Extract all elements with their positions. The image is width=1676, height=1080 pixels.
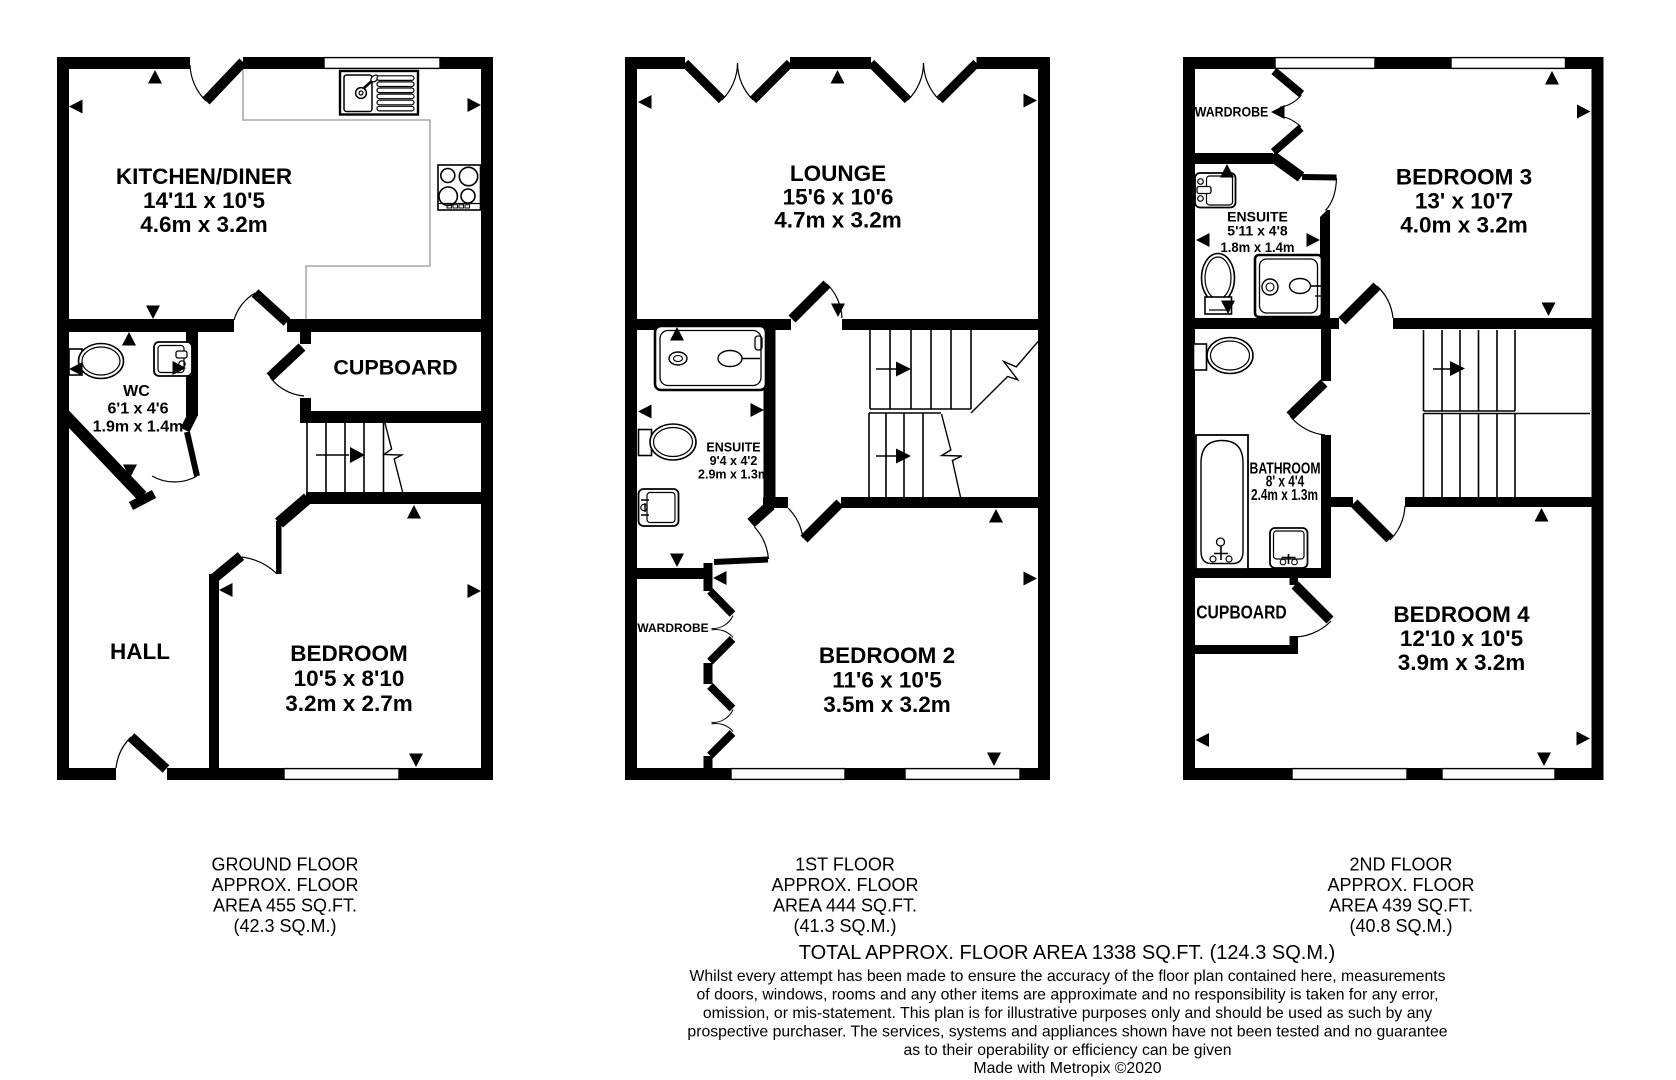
svg-text:AREA 455 SQ.FT.: AREA 455 SQ.FT. (213, 896, 357, 916)
svg-text:(41.3 SQ.M.): (41.3 SQ.M.) (793, 916, 896, 936)
svg-text:2.9m x 1.3m: 2.9m x 1.3m (698, 468, 769, 482)
svg-text:ENSUITE: ENSUITE (706, 441, 760, 455)
svg-text:(40.8 SQ.M.): (40.8 SQ.M.) (1349, 916, 1452, 936)
svg-text:of doors, windows, rooms and a: of doors, windows, rooms and any other i… (697, 987, 1439, 1004)
svg-text:WARDROBE: WARDROBE (637, 621, 708, 635)
svg-text:BEDROOM 4: BEDROOM 4 (1393, 602, 1530, 627)
svg-text:BEDROOM 3: BEDROOM 3 (1396, 165, 1532, 190)
svg-text:CUPBOARD: CUPBOARD (1196, 603, 1287, 623)
svg-text:prospective purchaser. The ser: prospective purchaser. The services, sys… (687, 1024, 1447, 1041)
svg-text:13' x 10'7: 13' x 10'7 (1415, 189, 1513, 214)
svg-text:4.0m x 3.2m: 4.0m x 3.2m (1400, 213, 1528, 238)
svg-text:14'11 x 10'5: 14'11 x 10'5 (143, 188, 265, 213)
svg-text:3.2m x 2.7m: 3.2m x 2.7m (285, 691, 413, 716)
svg-text:HALL: HALL (110, 639, 170, 664)
svg-text:KITCHEN/DINER: KITCHEN/DINER (116, 164, 292, 189)
svg-text:BEDROOM: BEDROOM (290, 641, 408, 666)
svg-text:Whilst every attempt has been: Whilst every attempt has been made to en… (689, 968, 1445, 985)
svg-text:CUPBOARD: CUPBOARD (333, 356, 457, 380)
svg-text:5'11 x 4'8: 5'11 x 4'8 (1227, 223, 1288, 239)
svg-text:2ND FLOOR: 2ND FLOOR (1349, 855, 1452, 875)
svg-text:TOTAL APPROX. FLOOR AREA 1338: TOTAL APPROX. FLOOR AREA 1338 SQ.FT. (12… (799, 942, 1335, 964)
svg-text:10'5 x 8'10: 10'5 x 8'10 (294, 666, 405, 691)
svg-text:omission, or mis-statement. Th: omission, or mis-statement. This plan is… (703, 1005, 1432, 1022)
svg-text:11'6 x 10'5: 11'6 x 10'5 (832, 668, 942, 693)
svg-text:AREA 444 SQ.FT.: AREA 444 SQ.FT. (773, 896, 917, 916)
svg-text:15'6 x 10'6: 15'6 x 10'6 (783, 185, 894, 210)
svg-text:3.5m x 3.2m: 3.5m x 3.2m (823, 692, 951, 717)
svg-text:LOUNGE: LOUNGE (790, 161, 886, 186)
svg-text:APPROX. FLOOR: APPROX. FLOOR (1327, 875, 1474, 895)
svg-text:Made with Metropix ©2020: Made with Metropix ©2020 (973, 1060, 1161, 1077)
svg-text:3.9m x 3.2m: 3.9m x 3.2m (1398, 650, 1526, 675)
svg-text:1ST FLOOR: 1ST FLOOR (795, 855, 895, 875)
svg-text:2.4m x 1.3m: 2.4m x 1.3m (1251, 487, 1318, 504)
svg-text:APPROX. FLOOR: APPROX. FLOOR (211, 875, 358, 895)
svg-text:AREA 439 SQ.FT.: AREA 439 SQ.FT. (1329, 896, 1473, 916)
svg-text:4.6m x 3.2m: 4.6m x 3.2m (140, 212, 268, 237)
svg-text:WARDROBE: WARDROBE (1195, 104, 1269, 120)
svg-text:1.8m x 1.4m: 1.8m x 1.4m (1221, 239, 1295, 255)
svg-text:GROUND FLOOR: GROUND FLOOR (211, 855, 358, 875)
svg-text:WC: WC (123, 383, 150, 400)
svg-text:9'4 x 4'2: 9'4 x 4'2 (710, 454, 758, 468)
svg-text:12'10 x 10'5: 12'10 x 10'5 (1400, 626, 1523, 651)
svg-text:BEDROOM 2: BEDROOM 2 (819, 643, 955, 668)
svg-text:(42.3 SQ.M.): (42.3 SQ.M.) (233, 916, 336, 936)
svg-text:as to their operability or eff: as to their operability or efficiency ca… (903, 1042, 1231, 1059)
svg-text:1.9m x 1.4m: 1.9m x 1.4m (93, 419, 184, 436)
svg-text:4.7m x 3.2m: 4.7m x 3.2m (774, 208, 902, 233)
svg-text:6'1 x 4'6: 6'1 x 4'6 (108, 401, 169, 418)
svg-text:APPROX. FLOOR: APPROX. FLOOR (771, 875, 918, 895)
